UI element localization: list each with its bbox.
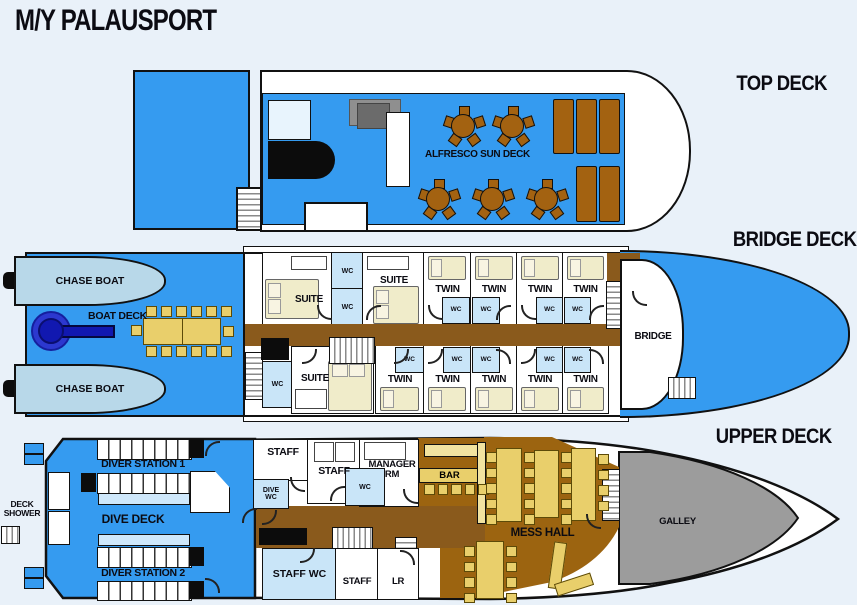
closet <box>314 442 334 462</box>
bar-counter: BAR <box>419 468 480 483</box>
corridor-bench <box>259 528 307 545</box>
lr-label: LR <box>378 577 418 587</box>
chair-column <box>561 452 572 525</box>
chair-row <box>146 306 232 317</box>
dive-wc-label: DIVE WC <box>258 487 284 501</box>
stairs <box>668 377 696 399</box>
stairs <box>329 337 375 364</box>
bar-counter-top <box>424 444 480 457</box>
mess-table <box>476 541 504 599</box>
transom-platform <box>24 567 44 578</box>
twin-label: TWIN <box>517 284 563 295</box>
twin-label: TWIN <box>563 284 608 295</box>
bridge-deck-corridor <box>245 324 622 346</box>
chair-column <box>464 546 475 603</box>
round-table <box>426 187 450 211</box>
twin-label: TWIN <box>563 374 608 385</box>
gear-locker <box>81 473 96 492</box>
round-table <box>480 187 504 211</box>
diver-station-1-label: DIVER STATION 1 <box>83 459 203 471</box>
bar-stools <box>424 484 489 495</box>
bar-divider <box>477 442 486 524</box>
staff-cabin: STAFF <box>335 548 379 600</box>
round-table <box>451 114 475 138</box>
round-table <box>534 187 558 211</box>
staff-label: STAFF <box>336 577 378 587</box>
mess-table <box>496 448 522 522</box>
transom-platform <box>24 454 44 465</box>
gear-locker <box>189 439 204 458</box>
boarding-ladder <box>1 526 20 544</box>
chase-boat-label: CHASE BOAT <box>56 383 125 395</box>
dive-gear-rack <box>97 547 192 568</box>
rinse-bench <box>98 534 190 546</box>
mess-hall-label: MESS HALL <box>505 527 580 540</box>
dive-gear-rack <box>97 473 192 494</box>
closet <box>335 442 355 462</box>
twin-label: TWIN <box>471 284 517 295</box>
deck-plan-canvas: M/Y PALAUSPORT TOP DECK BRIDGE DECK UPPE… <box>0 0 857 605</box>
transom-platform <box>24 578 44 589</box>
dive-gear-rack <box>97 581 192 601</box>
chair-column <box>486 452 497 525</box>
transom-platform <box>24 443 44 454</box>
bar-label: BAR <box>439 470 460 481</box>
suite-label: SUITE <box>369 275 419 286</box>
chair-row <box>146 346 232 357</box>
camera-table <box>48 472 70 510</box>
staff-label: STAFF <box>308 466 360 478</box>
diver-station-2-label: DIVER STATION 2 <box>83 568 203 580</box>
twin-label: TWIN <box>517 374 563 385</box>
twin-label: TWIN <box>424 374 471 385</box>
suite-label: SUITE <box>287 294 331 305</box>
staff-label: STAFF <box>254 447 312 459</box>
bridge-deck-label: BRIDGE DECK <box>732 228 856 252</box>
wc-label: WC <box>359 484 371 491</box>
chase-boat-2: CHASE BOAT <box>14 364 166 414</box>
deck-shower-label: DECK SHOWER <box>0 500 44 519</box>
closet <box>364 442 406 460</box>
gear-locker <box>189 581 204 599</box>
rinse-bench <box>98 493 190 505</box>
bridge-label: BRIDGE <box>628 331 678 342</box>
alfresco-sun-deck-label: ALFRESCO SUN DECK <box>420 149 535 160</box>
gear-locker <box>189 547 204 566</box>
dive-wc-room: DIVE WC <box>253 479 289 509</box>
camera-table <box>48 511 70 545</box>
dive-gear-rack <box>97 439 192 460</box>
staff-cabin: STAFF <box>253 439 313 481</box>
chair-column <box>506 546 517 603</box>
twin-label: TWIN <box>424 284 471 295</box>
twin-label: TWIN <box>471 374 517 385</box>
stairs <box>332 527 373 550</box>
storage-block <box>261 338 289 360</box>
staff-wc-label: STAFF WC <box>273 569 326 580</box>
round-table <box>500 114 524 138</box>
upper-deck-label: UPPER DECK <box>716 425 832 449</box>
top-deck-label: TOP DECK <box>736 72 827 96</box>
dive-deck-label: DIVE DECK <box>88 513 178 526</box>
chase-boat-1: CHASE BOAT <box>14 256 166 306</box>
manager-rm-label: MANAGER RM <box>368 460 416 481</box>
galley-label: GALLEY <box>645 517 710 527</box>
mess-table <box>571 448 596 521</box>
mess-table <box>534 450 559 518</box>
chair-column <box>598 454 609 511</box>
suite-label: SUITE <box>294 373 336 384</box>
chase-boat-label: CHASE BOAT <box>56 275 125 287</box>
chair-column <box>524 452 535 525</box>
boat-deck-label: BOAT DECK <box>80 311 155 323</box>
twin-label: TWIN <box>376 374 424 385</box>
